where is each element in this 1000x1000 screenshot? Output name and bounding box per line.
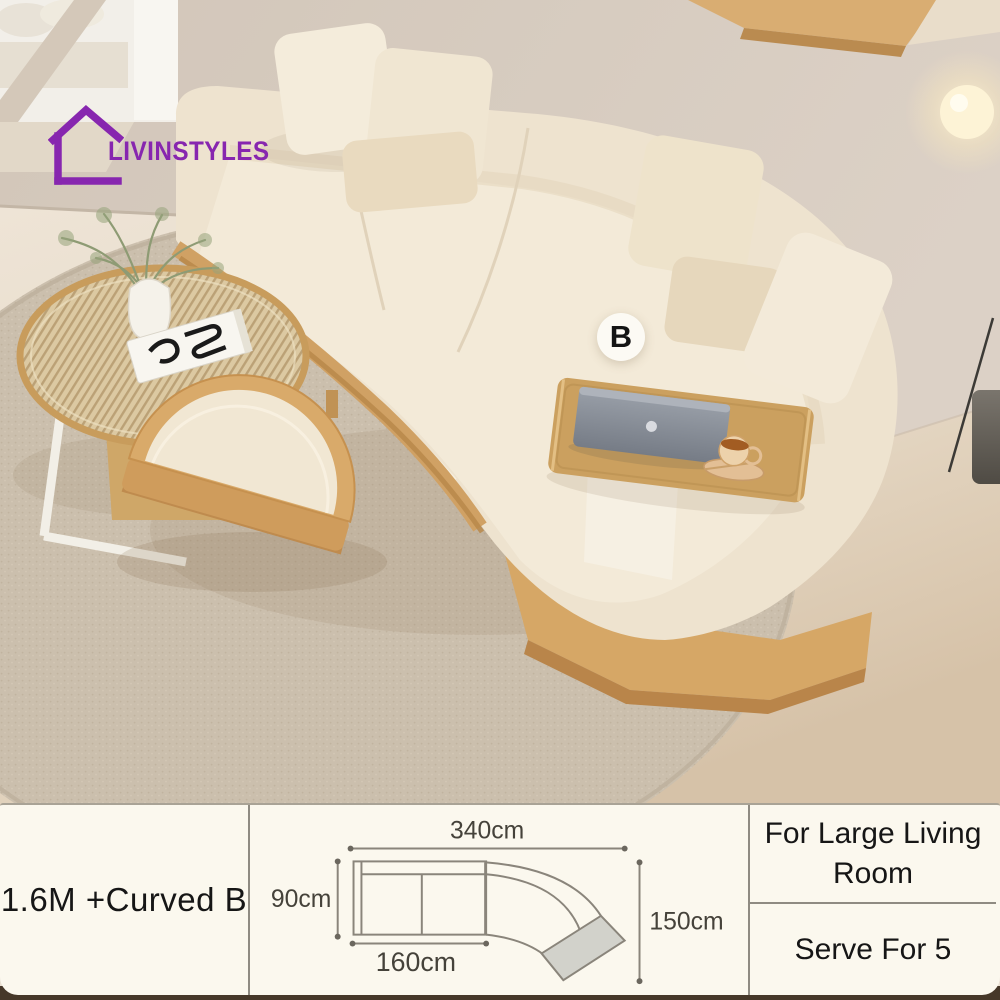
variant-label: 1.6M +Curved B: [1, 881, 247, 919]
variant-cell: 1.6M +Curved B: [0, 805, 250, 995]
curved-section-label: 150cm: [649, 909, 723, 936]
section-badge: B: [597, 313, 645, 361]
spec-bar: 1.6M +Curved B: [0, 803, 1000, 995]
brand-name: LIVINSTYLES: [108, 136, 270, 167]
capacity-label: Serve For 5: [795, 933, 952, 967]
total-width-label: 340cm: [450, 818, 524, 845]
dimension-diagram-cell: 340cm 90cm 160cm 150cm: [250, 805, 750, 995]
straight-section-label: 160cm: [376, 947, 456, 977]
info-cells: For Large Living Room Serve For 5: [750, 805, 996, 995]
capacity-cell: Serve For 5: [750, 904, 996, 995]
usage-cell: For Large Living Room: [750, 805, 996, 904]
brand-logo: LIVINSTYLES: [48, 100, 288, 188]
product-listing-image: LIVINSTYLES B 1.6M +Curved B: [0, 0, 1000, 1000]
seat-depth-label: 90cm: [271, 886, 331, 913]
sofa-dimension-diagram: 340cm 90cm 160cm 150cm: [250, 805, 748, 995]
section-badge-label: B: [610, 319, 632, 355]
usage-label: For Large Living Room: [764, 814, 982, 893]
diagram-armrest-end: [542, 916, 625, 980]
